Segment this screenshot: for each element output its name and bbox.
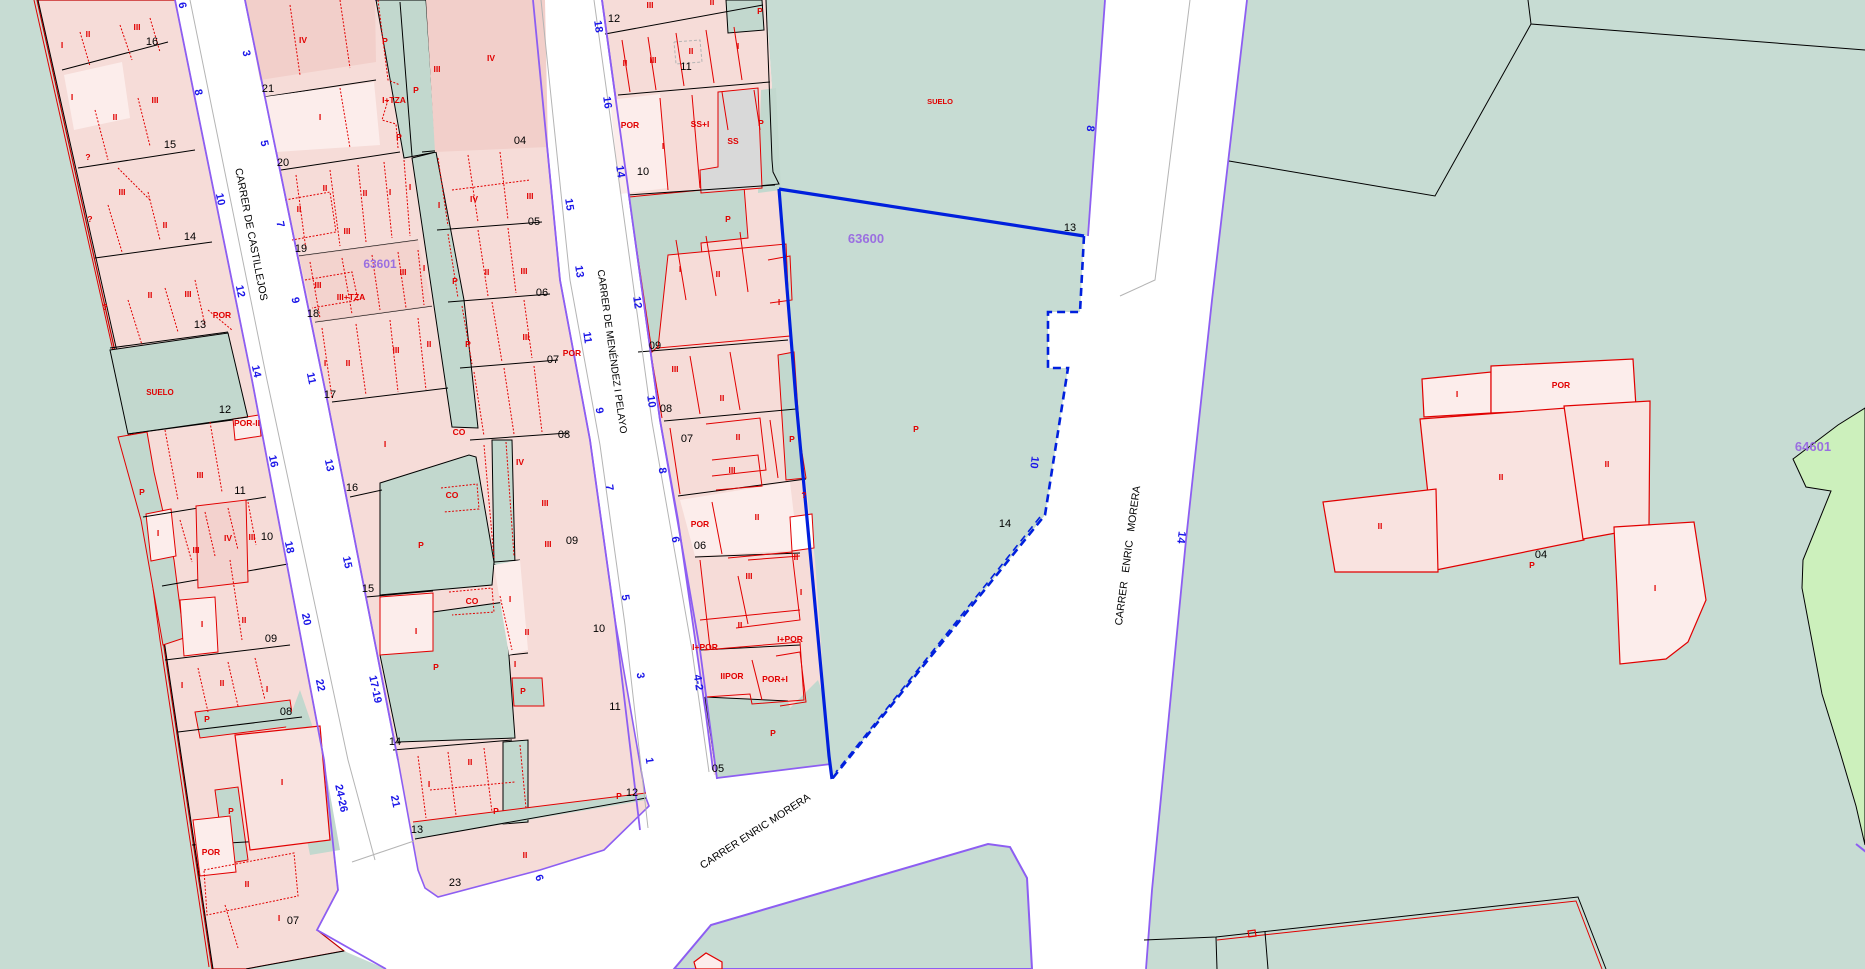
svg-text:III: III: [520, 266, 527, 276]
svg-text:CO: CO: [453, 427, 466, 437]
svg-text:III: III: [192, 545, 199, 555]
svg-text:P: P: [913, 424, 919, 434]
svg-text:05: 05: [528, 216, 540, 228]
svg-text:16: 16: [600, 96, 614, 110]
svg-text:II: II: [623, 58, 628, 68]
svg-text:13: 13: [194, 319, 206, 331]
svg-text:II: II: [363, 188, 368, 198]
svg-text:POR: POR: [563, 348, 581, 358]
svg-text:III: III: [745, 571, 752, 581]
svg-text:III: III: [649, 55, 656, 65]
svg-text:POR: POR: [691, 519, 709, 529]
svg-text:I: I: [384, 439, 386, 449]
svg-text:II: II: [297, 204, 302, 214]
svg-text:?: ?: [87, 214, 92, 224]
svg-text:III: III: [728, 465, 735, 475]
svg-text:04: 04: [1535, 549, 1547, 561]
svg-text:II: II: [523, 850, 528, 860]
svg-text:14: 14: [999, 518, 1011, 530]
svg-text:P: P: [1529, 560, 1535, 570]
svg-text:I: I: [71, 92, 73, 102]
svg-text:?: ?: [801, 490, 806, 500]
svg-text:P: P: [725, 214, 731, 224]
svg-text:P: P: [465, 339, 471, 349]
svg-text:I: I: [662, 141, 664, 151]
svg-text:4-2: 4-2: [691, 674, 705, 691]
svg-text:II: II: [163, 220, 168, 230]
svg-text:I: I: [800, 587, 802, 597]
svg-text:19: 19: [295, 243, 307, 255]
svg-text:SUELO: SUELO: [146, 388, 174, 397]
svg-text:II: II: [148, 290, 153, 300]
svg-text:II: II: [427, 339, 432, 349]
svg-text:P: P: [396, 132, 402, 142]
svg-text:II: II: [485, 267, 490, 277]
svg-text:12: 12: [608, 13, 620, 25]
svg-text:09: 09: [649, 340, 661, 352]
svg-text:IV: IV: [516, 457, 524, 467]
svg-text:?: ?: [102, 302, 107, 312]
svg-text:CO: CO: [466, 596, 479, 606]
svg-text:11: 11: [234, 485, 245, 497]
svg-text:P: P: [616, 791, 622, 801]
svg-text:P: P: [770, 728, 776, 738]
svg-text:III: III: [544, 539, 551, 549]
svg-text:II: II: [1378, 521, 1383, 531]
svg-text:III: III: [433, 64, 440, 74]
svg-text:I: I: [428, 779, 430, 789]
svg-text:P: P: [382, 36, 388, 46]
svg-text:P: P: [433, 662, 439, 672]
svg-text:17: 17: [324, 389, 336, 401]
svg-text:I: I: [679, 264, 681, 274]
svg-text:18: 18: [591, 20, 605, 34]
svg-text:III: III: [343, 226, 350, 236]
svg-text:SS+I: SS+I: [691, 119, 710, 129]
svg-text:I: I: [1654, 583, 1656, 593]
svg-text:III: III: [184, 289, 191, 299]
svg-text:IV: IV: [224, 533, 232, 543]
svg-text:III: III: [526, 191, 533, 201]
svg-text:II: II: [738, 620, 743, 630]
svg-text:I: I: [389, 187, 391, 197]
svg-text:15: 15: [164, 139, 176, 151]
svg-text:13: 13: [322, 458, 336, 472]
svg-text:I: I: [201, 619, 203, 629]
svg-text:II: II: [468, 757, 473, 767]
svg-text:II: II: [346, 358, 351, 368]
svg-text:P: P: [204, 714, 210, 724]
svg-text:07: 07: [287, 915, 299, 927]
svg-text:III: III: [196, 470, 203, 480]
svg-text:08: 08: [558, 429, 570, 441]
svg-text:12: 12: [233, 284, 247, 298]
svg-text:II: II: [736, 432, 741, 442]
svg-text:11: 11: [580, 331, 594, 344]
svg-text:10: 10: [261, 531, 273, 543]
svg-text:I: I: [778, 297, 780, 307]
svg-text:04: 04: [514, 135, 526, 147]
svg-text:II: II: [323, 183, 328, 193]
svg-text:III: III: [133, 22, 140, 32]
svg-text:10: 10: [644, 395, 658, 409]
svg-text:I+POR: I+POR: [692, 642, 718, 652]
svg-text:P: P: [452, 276, 458, 286]
svg-text:21: 21: [388, 794, 402, 808]
svg-text:14: 14: [184, 231, 196, 243]
svg-text:III: III: [314, 280, 321, 290]
svg-text:I: I: [409, 182, 411, 192]
svg-text:15: 15: [562, 198, 576, 212]
svg-text:P: P: [758, 118, 764, 128]
svg-text:II: II: [242, 615, 247, 625]
svg-text:SS: SS: [727, 136, 739, 146]
svg-text:II: II: [755, 512, 760, 522]
svg-text:11: 11: [304, 371, 318, 385]
svg-text:POR: POR: [202, 847, 220, 857]
svg-text:08: 08: [660, 403, 672, 415]
svg-text:15: 15: [340, 555, 354, 569]
svg-text:III: III: [646, 0, 653, 10]
svg-text:63601: 63601: [363, 257, 397, 271]
svg-text:P: P: [418, 540, 424, 550]
svg-text:POR: POR: [621, 120, 639, 130]
svg-text:III: III: [671, 364, 678, 374]
svg-text:09: 09: [566, 535, 578, 547]
svg-text:20: 20: [277, 157, 289, 169]
svg-text:07: 07: [547, 354, 559, 366]
svg-text:II: II: [220, 678, 225, 688]
svg-text:I: I: [1456, 389, 1458, 399]
svg-text:POR: POR: [213, 310, 231, 320]
svg-text:12: 12: [630, 296, 644, 310]
svg-text:I: I: [514, 659, 516, 669]
svg-text:P: P: [789, 434, 795, 444]
svg-text:11: 11: [680, 61, 691, 73]
svg-text:I: I: [319, 112, 321, 122]
svg-text:16: 16: [146, 36, 158, 48]
svg-text:II: II: [1605, 459, 1610, 469]
svg-text:III: III: [248, 532, 255, 542]
svg-text:I: I: [324, 358, 326, 368]
svg-text:II: II: [113, 112, 118, 122]
svg-text:13: 13: [572, 265, 586, 279]
svg-text:III: III: [151, 95, 158, 105]
svg-text:III: III: [118, 187, 125, 197]
svg-text:I: I: [509, 594, 511, 604]
svg-text:II: II: [525, 627, 530, 637]
svg-text:III: III: [541, 498, 548, 508]
svg-text:IV: IV: [487, 53, 495, 63]
svg-text:I+POR: I+POR: [777, 634, 803, 644]
svg-text:05: 05: [712, 763, 724, 775]
svg-text:10: 10: [1027, 456, 1040, 470]
svg-text:06: 06: [694, 540, 706, 552]
svg-text:II: II: [86, 29, 91, 39]
svg-text:13: 13: [1064, 222, 1076, 234]
svg-text:12: 12: [626, 787, 638, 799]
svg-text:10: 10: [637, 166, 649, 178]
svg-text:II: II: [1499, 472, 1504, 482]
svg-text:16: 16: [346, 482, 358, 494]
svg-text:I: I: [415, 626, 417, 636]
svg-text:18: 18: [282, 540, 296, 554]
svg-text:23: 23: [449, 877, 461, 889]
svg-text:P: P: [413, 85, 419, 95]
svg-text:IV: IV: [299, 35, 307, 45]
svg-text:II: II: [794, 552, 799, 562]
svg-text:11: 11: [609, 701, 620, 713]
svg-text:I: I: [281, 777, 283, 787]
svg-text:III: III: [522, 332, 529, 342]
svg-text:07: 07: [681, 433, 693, 445]
svg-text:18: 18: [307, 308, 319, 320]
svg-text:POR-II: POR-II: [234, 418, 260, 428]
svg-text:10: 10: [213, 192, 227, 206]
svg-text:21: 21: [262, 83, 274, 95]
svg-text:09: 09: [265, 633, 277, 645]
svg-text:P: P: [493, 806, 499, 816]
svg-text:I+TZA: I+TZA: [382, 95, 406, 105]
svg-text:CO: CO: [446, 490, 459, 500]
svg-text:III+TZA: III+TZA: [337, 292, 366, 302]
svg-text:I: I: [266, 684, 268, 694]
svg-text:POR: POR: [1552, 380, 1570, 390]
svg-text:III: III: [392, 345, 399, 355]
svg-text:II: II: [245, 879, 250, 889]
svg-text:12: 12: [219, 404, 231, 416]
svg-text:SUELO: SUELO: [927, 97, 953, 106]
svg-text:I: I: [278, 913, 280, 923]
svg-text:POR+I: POR+I: [762, 674, 788, 684]
svg-text:I: I: [438, 200, 440, 210]
svg-text:?: ?: [85, 152, 90, 162]
svg-text:15: 15: [362, 583, 374, 595]
svg-text:22: 22: [313, 678, 327, 692]
svg-text:14: 14: [389, 736, 401, 748]
svg-text:II: II: [689, 46, 694, 56]
svg-text:16: 16: [266, 454, 280, 468]
svg-text:13: 13: [411, 824, 423, 836]
svg-text:P: P: [757, 6, 763, 16]
svg-text:10: 10: [593, 623, 605, 635]
svg-text:14: 14: [1174, 531, 1188, 545]
svg-text:06: 06: [536, 287, 548, 299]
svg-text:I: I: [423, 263, 425, 273]
svg-text:I: I: [737, 41, 739, 51]
svg-text:II: II: [710, 0, 715, 7]
svg-text:III: III: [399, 267, 406, 277]
svg-text:IV: IV: [470, 194, 478, 204]
svg-text:II: II: [720, 393, 725, 403]
svg-text:I: I: [61, 40, 63, 50]
svg-text:63600: 63600: [848, 231, 884, 246]
svg-text:I: I: [157, 528, 159, 538]
svg-text:II: II: [716, 269, 721, 279]
svg-text:IIPOR: IIPOR: [720, 671, 743, 681]
svg-text:64601: 64601: [1795, 439, 1831, 454]
svg-text:P: P: [139, 487, 145, 497]
svg-text:I: I: [181, 680, 183, 690]
svg-text:P: P: [228, 806, 234, 816]
svg-text:P: P: [520, 686, 526, 696]
svg-text:20: 20: [299, 612, 313, 626]
svg-text:08: 08: [280, 706, 292, 718]
